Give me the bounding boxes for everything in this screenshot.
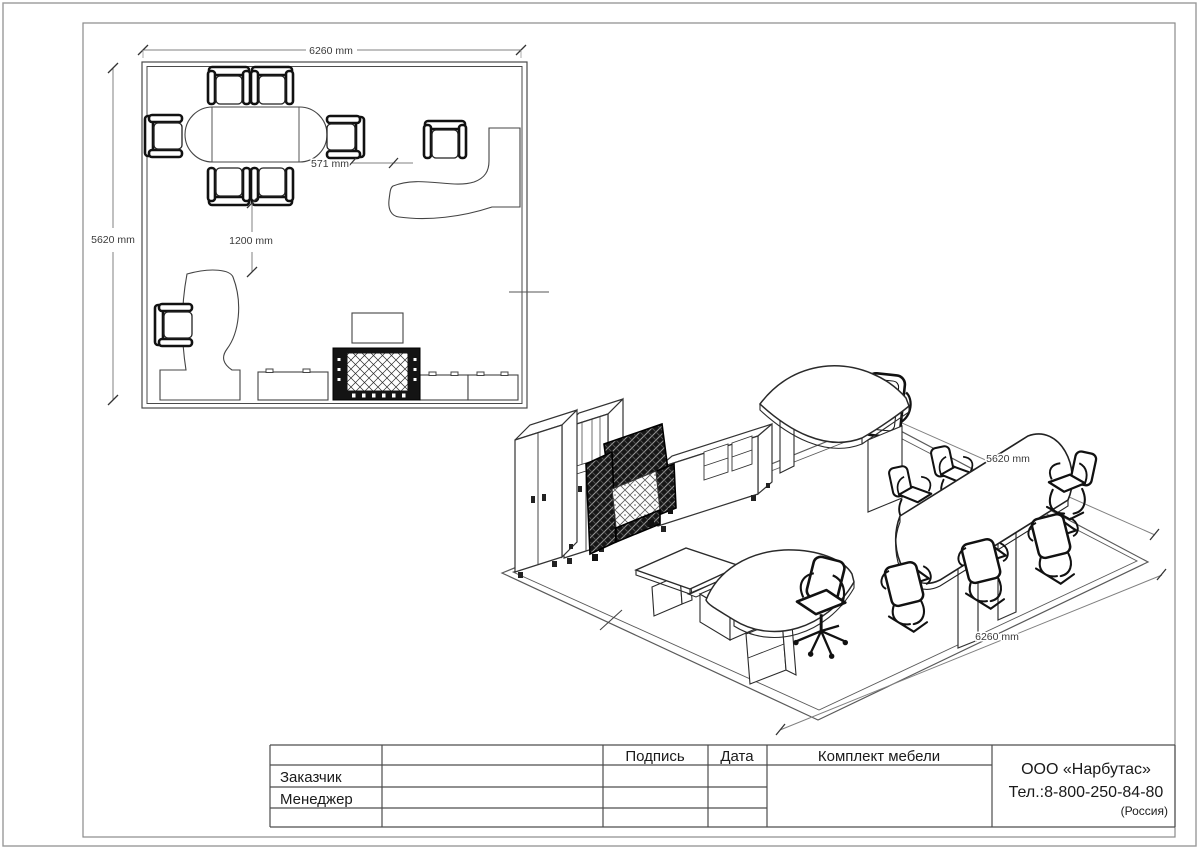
plan-dim-height-label: 5620 mm [91, 234, 135, 246]
iso-executive-desk [760, 366, 909, 512]
floor-plan: 6260 mm 5620 mm 571 mm 1200 mm [91, 45, 549, 408]
plan-dim-clearance-label: 1200 mm [229, 235, 273, 247]
iso-view: 5620 mm 6260 mm [502, 366, 1166, 735]
titleblock-manager-label: Менеджер [280, 791, 353, 808]
plan-conference-table [185, 107, 327, 162]
title-block: Подпись Дата Комплект мебели Заказчик Ме… [270, 745, 1175, 827]
titleblock-date-header: Дата [720, 748, 754, 765]
plan-cabinet [420, 372, 518, 400]
plan-sofa [333, 348, 420, 400]
plan-dim-gap-label: 571 mm [311, 158, 349, 170]
plan-chair [208, 168, 250, 205]
titleblock-customer-label: Заказчик [280, 769, 342, 786]
plan-chair [327, 116, 364, 158]
iso-dim-depth-label: 5620 mm [986, 453, 1030, 465]
company-country: (Россия) [1121, 804, 1168, 818]
plan-chair [145, 115, 182, 157]
plan-desk-chair [155, 304, 192, 346]
company-phone: Тел.:8-800-250-84-80 [1009, 784, 1164, 801]
company-name: ООО «Нарбутас» [1021, 761, 1151, 778]
company-info: ООО «Нарбутас» Тел.:8-800-250-84-80 (Рос… [1009, 761, 1168, 818]
plan-desk-chair [424, 121, 466, 158]
plan-dim-width-label: 6260 mm [309, 45, 353, 57]
titleblock-set-header: Комплект мебели [818, 748, 940, 765]
titleblock-signature-header: Подпись [625, 748, 685, 765]
iso-dim-width-label: 6260 mm [975, 631, 1019, 643]
iso-conference-chair [1028, 513, 1077, 584]
drawing-canvas: 6260 mm 5620 mm 571 mm 1200 mm [0, 0, 1200, 850]
plan-chair [251, 168, 293, 205]
plan-sideboard [258, 369, 328, 400]
drawing-sheet: 6260 mm 5620 mm 571 mm 1200 mm [0, 0, 1200, 850]
plan-coffee-table [352, 313, 403, 343]
plan-chair [208, 67, 250, 104]
plan-chair [251, 67, 293, 104]
